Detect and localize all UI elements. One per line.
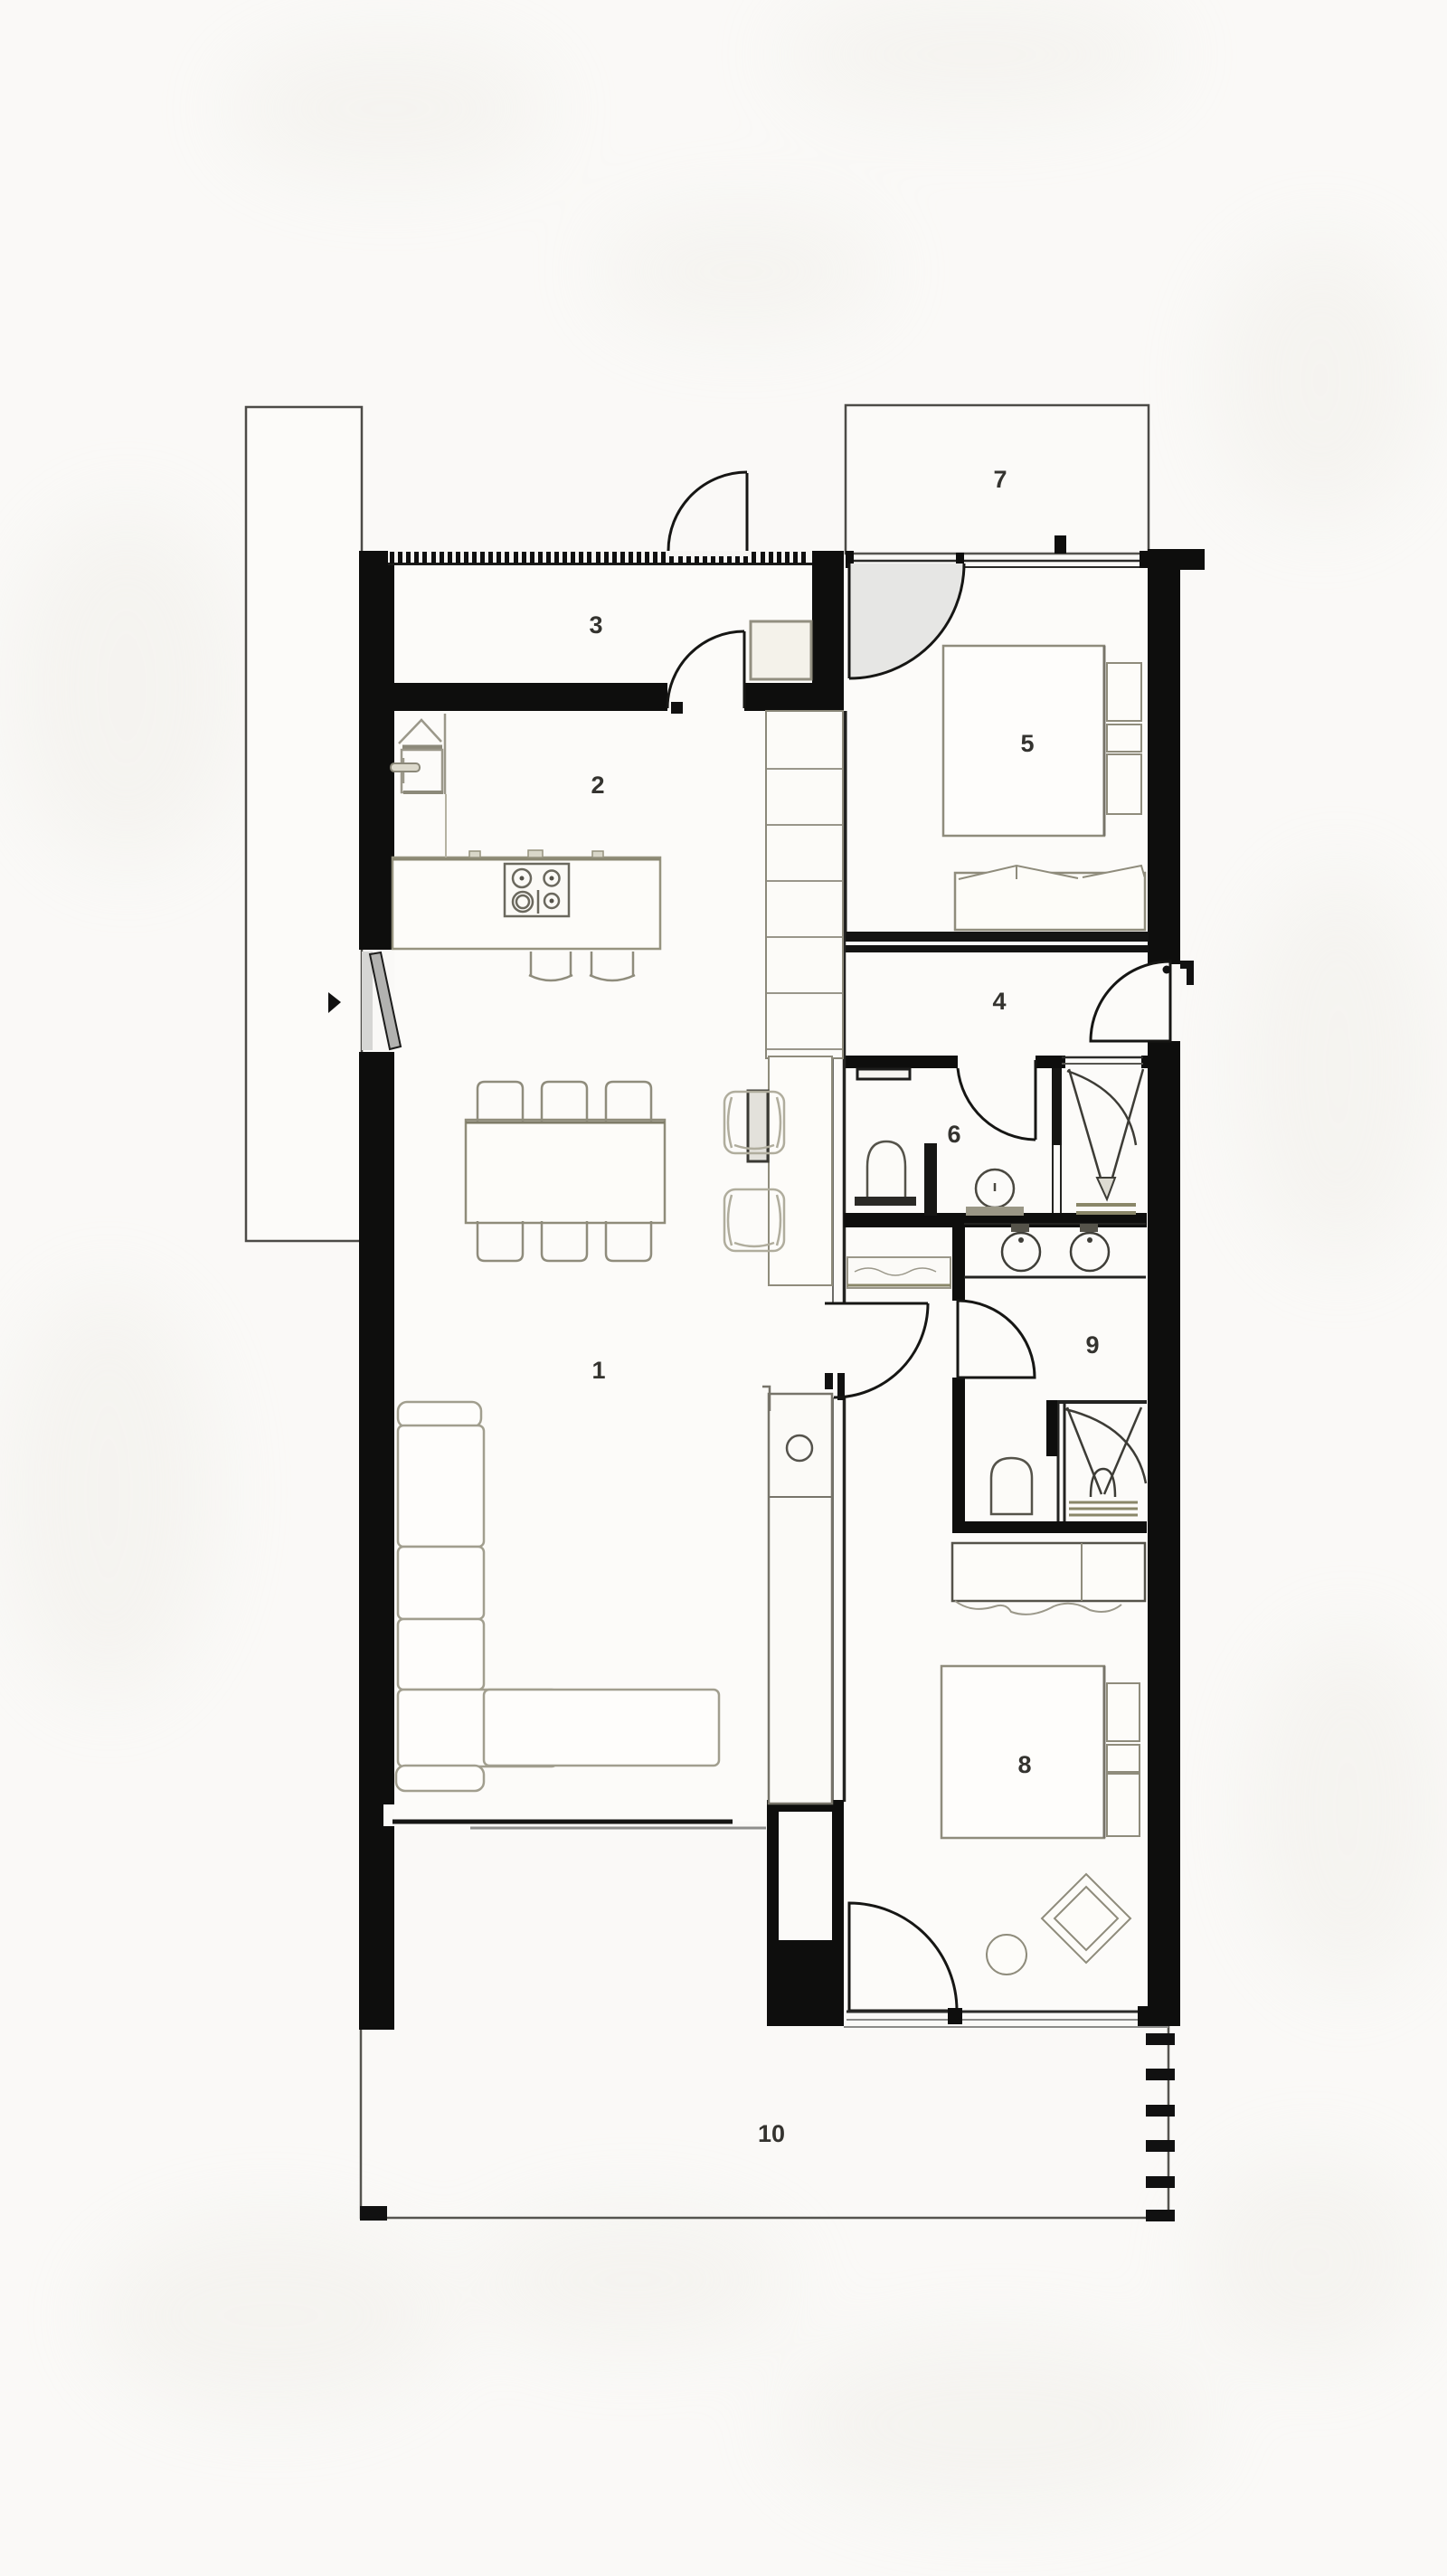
svg-text:3: 3 <box>589 611 602 639</box>
svg-text:9: 9 <box>1085 1331 1099 1359</box>
svg-text:6: 6 <box>947 1121 960 1148</box>
svg-text:5: 5 <box>1020 730 1034 757</box>
svg-text:1: 1 <box>591 1357 605 1384</box>
svg-text:4: 4 <box>992 988 1006 1015</box>
svg-text:10: 10 <box>758 2120 785 2147</box>
svg-text:2: 2 <box>591 772 604 799</box>
svg-text:7: 7 <box>993 466 1007 493</box>
svg-text:8: 8 <box>1017 1751 1031 1778</box>
